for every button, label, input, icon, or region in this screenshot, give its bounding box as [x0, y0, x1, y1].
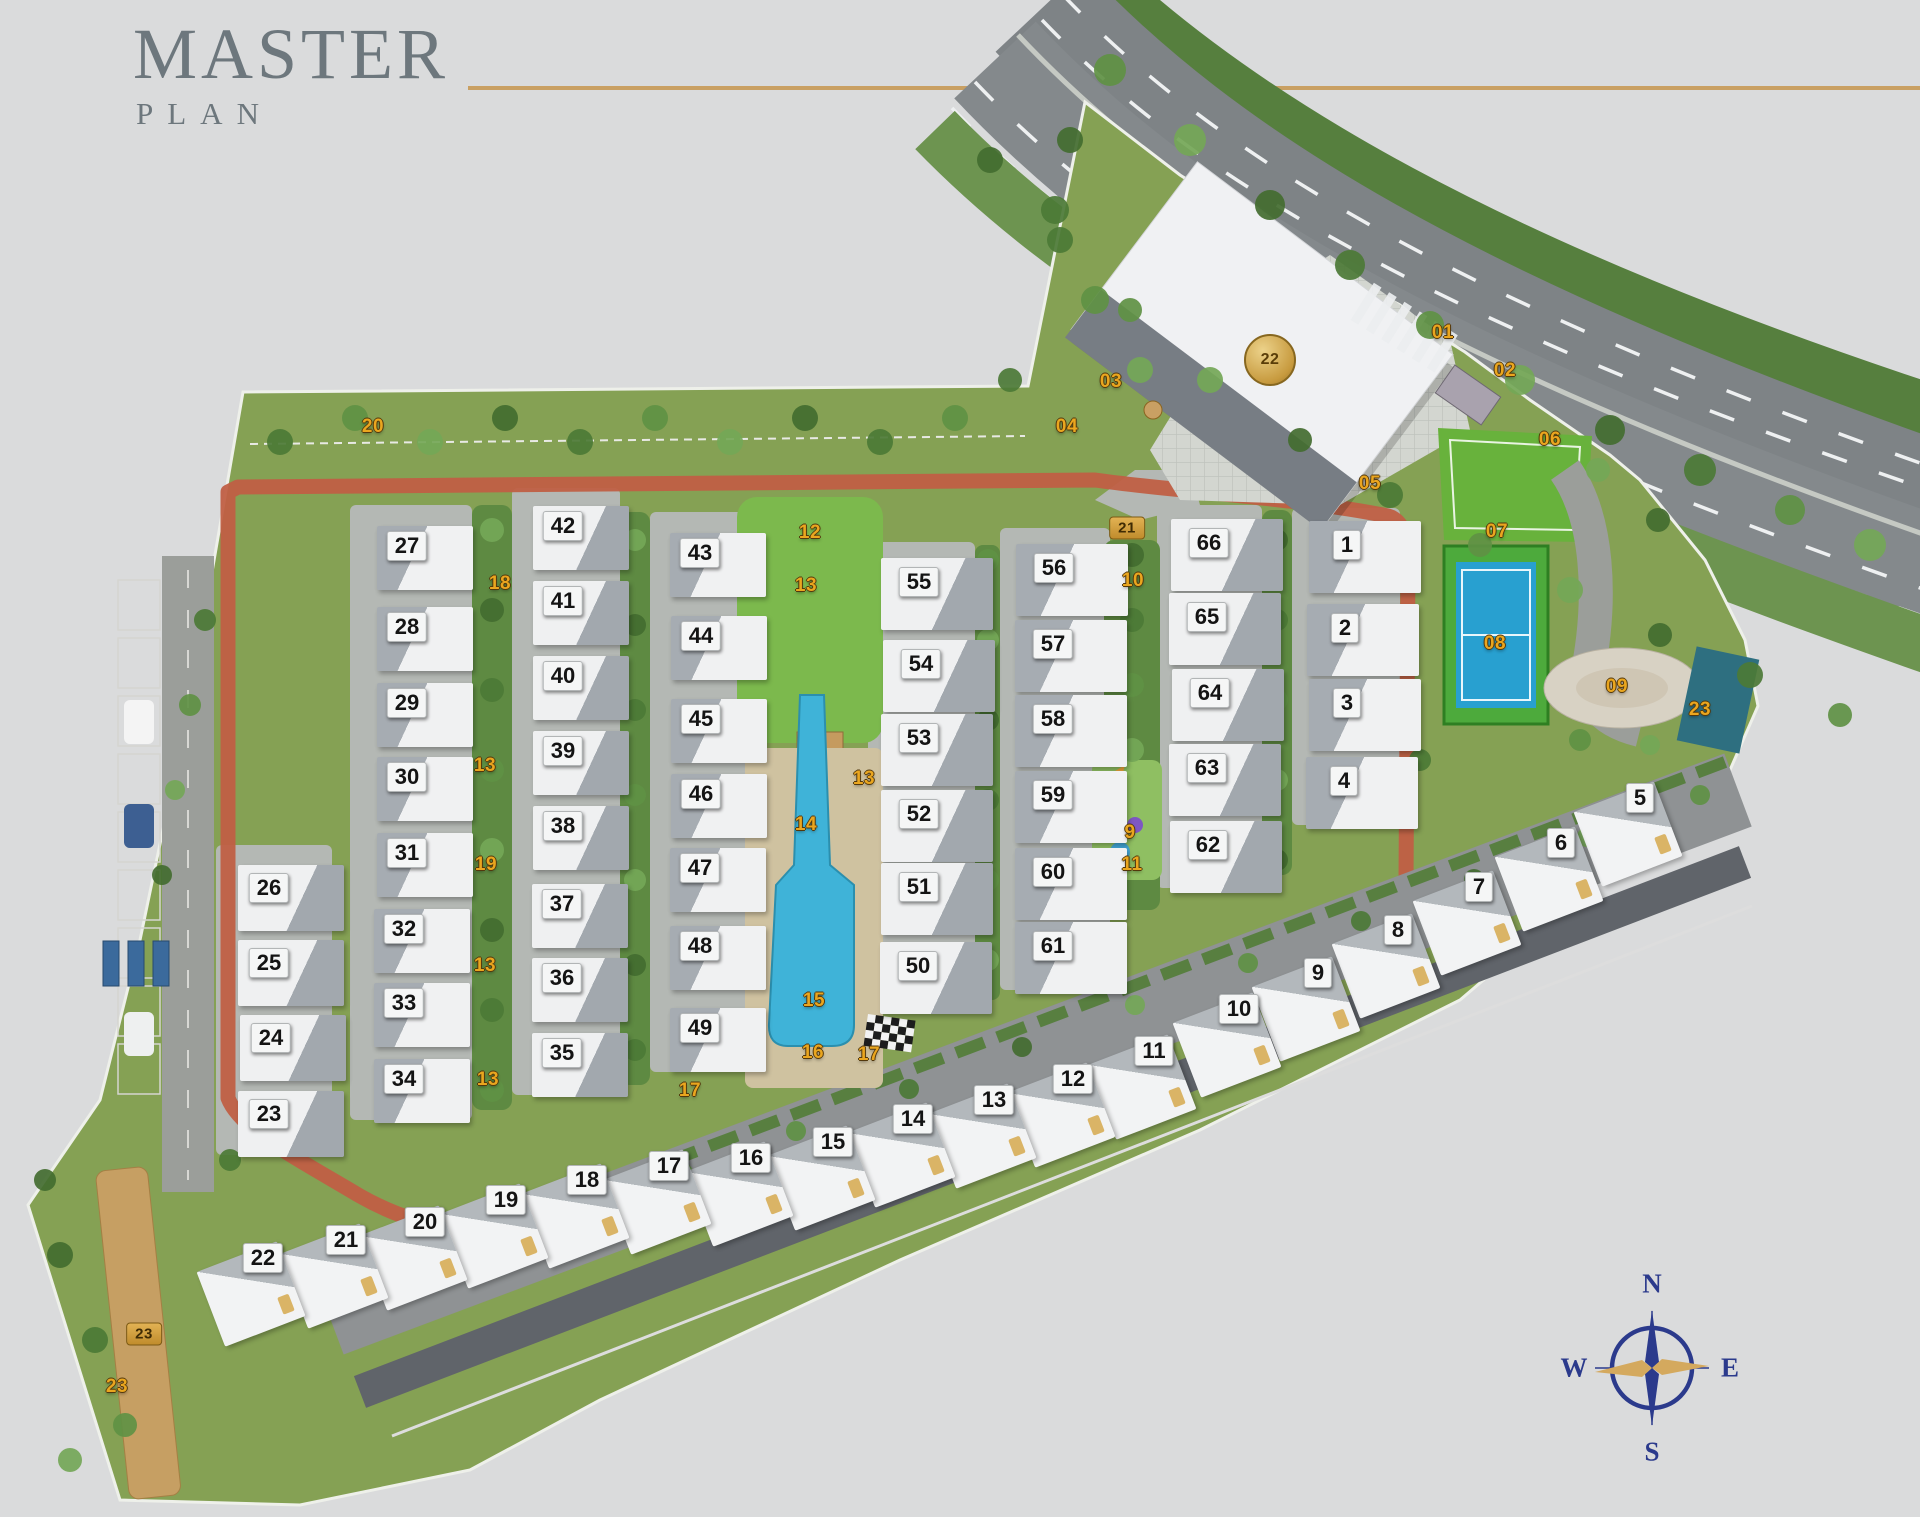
villa-window-light — [520, 1236, 538, 1257]
villa-label-59: 59 — [1033, 780, 1073, 810]
villa-window-light — [601, 1216, 619, 1237]
amenity-marker-22: 22 — [1244, 334, 1296, 386]
amenity-marker-23: 23 — [1689, 699, 1711, 721]
villa-label-42: 42 — [543, 511, 583, 541]
villa-label-63: 63 — [1187, 753, 1227, 783]
villa-label-28: 28 — [387, 612, 427, 642]
villa-label-14: 14 — [893, 1104, 933, 1134]
villa-label-20: 20 — [405, 1207, 445, 1237]
compass-north-label: N — [1642, 1269, 1662, 1300]
villa-label-48: 48 — [680, 931, 720, 961]
villa-label-64: 64 — [1190, 678, 1230, 708]
amenity-marker-13: 13 — [477, 1069, 499, 1091]
villa-window-light — [439, 1258, 457, 1279]
villa-label-33: 33 — [384, 988, 424, 1018]
villa-window-light — [277, 1294, 295, 1315]
amenity-marker-02: 02 — [1494, 360, 1516, 382]
villa-label-53: 53 — [899, 723, 939, 753]
villa-label-56: 56 — [1034, 553, 1074, 583]
villa-3 — [1309, 679, 1421, 751]
villa-label-15: 15 — [813, 1127, 853, 1157]
amenity-marker-19: 19 — [475, 854, 497, 876]
master-plan-page: 2728293031323334262524234241403938373635… — [0, 0, 1920, 1517]
villa-label-16: 16 — [731, 1143, 771, 1173]
amenity-marker-21: 21 — [1109, 517, 1145, 540]
villa-label-21: 21 — [326, 1225, 366, 1255]
villa-label-58: 58 — [1033, 704, 1073, 734]
amenity-marker-14: 14 — [795, 814, 817, 836]
compass-south-label: S — [1644, 1437, 1659, 1468]
villa-label-55: 55 — [899, 567, 939, 597]
amenity-marker-08: 08 — [1484, 633, 1506, 655]
entrance-emblem — [1144, 401, 1162, 419]
villa-label-38: 38 — [543, 811, 583, 841]
villa-label-57: 57 — [1033, 629, 1073, 659]
villa-window-light — [765, 1194, 783, 1215]
amenity-marker-12: 12 — [799, 522, 821, 544]
villa-window-light — [1654, 834, 1672, 855]
amenity-marker-07: 07 — [1486, 521, 1508, 543]
villa-label-39: 39 — [543, 736, 583, 766]
compass-graphic — [1572, 1288, 1732, 1448]
amenity-marker-23: 23 — [126, 1323, 162, 1346]
villa-label-22: 22 — [243, 1243, 283, 1273]
villa-label-25: 25 — [249, 948, 289, 978]
villa-label-34: 34 — [384, 1064, 424, 1094]
villa-label-3: 3 — [1333, 688, 1361, 718]
villa-window-light — [1575, 879, 1593, 900]
villa-label-13: 13 — [974, 1085, 1014, 1115]
villa-label-30: 30 — [387, 762, 427, 792]
villa-label-1: 1 — [1333, 530, 1361, 560]
villa-label-2: 2 — [1331, 613, 1359, 643]
amenity-marker-23: 23 — [106, 1376, 128, 1398]
villa-label-62: 62 — [1188, 830, 1228, 860]
villa-label-5: 5 — [1626, 783, 1654, 813]
amenity-marker-13: 13 — [474, 955, 496, 977]
villa-label-9: 9 — [1304, 958, 1332, 988]
page-title: MASTER — [133, 18, 449, 90]
villa-label-23: 23 — [249, 1099, 289, 1129]
amenity-marker-13: 13 — [795, 575, 817, 597]
amenity-marker-9: 9 — [1124, 822, 1135, 844]
villa-1 — [1309, 521, 1421, 593]
villa-label-27: 27 — [387, 531, 427, 561]
villa-label-11: 11 — [1134, 1036, 1173, 1066]
villa-label-36: 36 — [542, 963, 582, 993]
amenity-marker-13: 13 — [853, 768, 875, 790]
villa-label-60: 60 — [1033, 857, 1073, 887]
amenity-marker-10: 10 — [1122, 570, 1144, 592]
amenity-marker-17: 17 — [679, 1080, 701, 1102]
villa-label-46: 46 — [681, 779, 721, 809]
villa-window-light — [1253, 1045, 1271, 1066]
villa-window-light — [360, 1276, 378, 1297]
amenity-marker-05: 05 — [1359, 473, 1381, 495]
villa-label-54: 54 — [901, 649, 941, 679]
villa-window-light — [1332, 1009, 1350, 1030]
compass-rose: N S W E — [1552, 1268, 1752, 1468]
villa-label-41: 41 — [543, 586, 583, 616]
villa-label-44: 44 — [681, 621, 721, 651]
villa-label-18: 18 — [567, 1165, 607, 1195]
villa-label-61: 61 — [1033, 931, 1073, 961]
villa-label-35: 35 — [542, 1038, 582, 1068]
villa-window-light — [927, 1155, 945, 1176]
villa-label-26: 26 — [249, 873, 289, 903]
villa-4 — [1306, 757, 1418, 829]
amenity-marker-17: 17 — [858, 1044, 880, 1066]
amenity-marker-18: 18 — [489, 573, 511, 595]
villa-label-19: 19 — [486, 1185, 526, 1215]
villa-label-40: 40 — [543, 661, 583, 691]
villa-label-31: 31 — [387, 838, 427, 868]
title-block: MASTER PLAN — [133, 18, 449, 132]
villa-label-37: 37 — [542, 889, 582, 919]
villa-label-7: 7 — [1465, 872, 1493, 902]
amenity-marker-11: 11 — [1121, 854, 1142, 876]
villa-window-light — [683, 1202, 701, 1223]
compass-west-label: W — [1561, 1353, 1588, 1384]
villa-label-49: 49 — [680, 1013, 720, 1043]
villa-label-24: 24 — [251, 1023, 291, 1053]
villa-label-47: 47 — [680, 853, 720, 883]
villa-label-50: 50 — [898, 951, 938, 981]
amenity-marker-09: 09 — [1606, 676, 1628, 698]
villa-label-32: 32 — [384, 914, 424, 944]
villa-window-light — [1168, 1087, 1186, 1108]
villa-label-8: 8 — [1384, 915, 1412, 945]
villa-label-66: 66 — [1189, 528, 1229, 558]
villa-window-light — [847, 1178, 865, 1199]
villa-window-light — [1412, 966, 1430, 987]
amenity-marker-13: 13 — [474, 755, 496, 777]
page-subtitle: PLAN — [136, 96, 449, 132]
villa-label-51: 51 — [899, 872, 939, 902]
villa-label-65: 65 — [1187, 602, 1227, 632]
villa-window-light — [1087, 1115, 1105, 1136]
amenity-marker-20: 20 — [362, 416, 384, 438]
villa-label-29: 29 — [387, 688, 427, 718]
villa-label-10: 10 — [1219, 994, 1259, 1024]
villa-label-12: 12 — [1053, 1064, 1093, 1094]
villa-window-light — [1008, 1136, 1026, 1157]
amenity-marker-15: 15 — [803, 990, 825, 1012]
villa-label-17: 17 — [649, 1151, 689, 1181]
villa-label-43: 43 — [680, 538, 720, 568]
amenity-marker-16: 16 — [802, 1042, 824, 1064]
villa-label-45: 45 — [681, 704, 721, 734]
amenity-marker-06: 06 — [1539, 429, 1561, 451]
amenity-marker-04: 04 — [1056, 416, 1078, 438]
villa-label-4: 4 — [1330, 766, 1358, 796]
villa-2 — [1307, 604, 1419, 676]
villa-label-6: 6 — [1547, 828, 1575, 858]
villa-label-52: 52 — [899, 799, 939, 829]
villa-window-light — [1493, 923, 1511, 944]
compass-east-label: E — [1721, 1353, 1739, 1384]
amenity-marker-03: 03 — [1100, 371, 1122, 393]
amenity-marker-01: 01 — [1432, 322, 1454, 344]
